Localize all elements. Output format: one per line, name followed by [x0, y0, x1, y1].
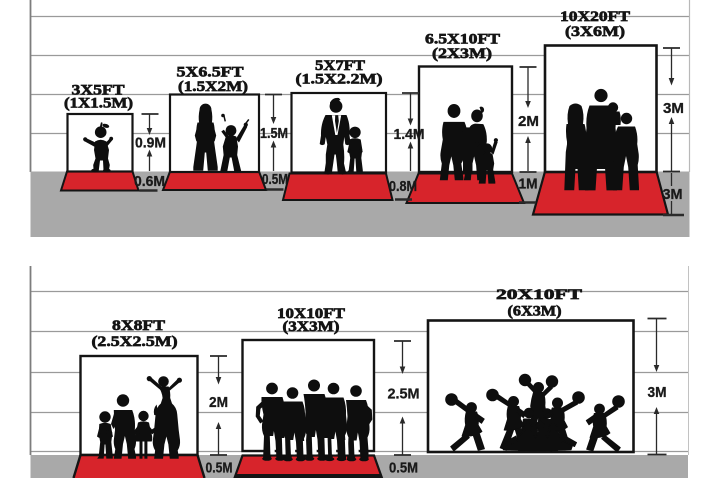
svg-text:2.5M: 2.5M: [388, 386, 420, 403]
svg-text:(1.5X2M): (1.5X2M): [178, 79, 248, 95]
svg-text:0.5M: 0.5M: [206, 460, 233, 477]
svg-text:0.5M: 0.5M: [389, 460, 418, 477]
svg-text:1M: 1M: [519, 176, 538, 193]
svg-text:0.5M: 0.5M: [262, 171, 288, 188]
svg-text:(3X6M): (3X6M): [565, 24, 625, 40]
svg-text:2M: 2M: [518, 113, 539, 130]
svg-text:(2X3M): (2X3M): [432, 46, 492, 62]
svg-text:0.6M: 0.6M: [134, 173, 165, 190]
svg-text:20X10FT: 20X10FT: [496, 287, 582, 303]
svg-text:3M: 3M: [663, 100, 684, 117]
svg-text:(6X3M): (6X3M): [508, 304, 562, 320]
svg-text:0.8M: 0.8M: [389, 178, 417, 195]
svg-text:(1.5X2.2M): (1.5X2.2M): [296, 72, 383, 88]
svg-text:10X20FT: 10X20FT: [560, 9, 630, 25]
svg-text:2M: 2M: [209, 394, 228, 411]
svg-text:3M: 3M: [663, 186, 683, 203]
svg-text:0.9M: 0.9M: [135, 135, 166, 152]
svg-text:(1X1.5M): (1X1.5M): [64, 96, 133, 112]
svg-text:1.4M: 1.4M: [394, 126, 425, 143]
svg-text:(2.5X2.5M): (2.5X2.5M): [92, 334, 178, 350]
svg-text:(3X3M): (3X3M): [283, 319, 340, 335]
svg-text:8X8FT: 8X8FT: [112, 318, 165, 334]
svg-text:1.5M: 1.5M: [260, 125, 288, 142]
svg-text:3M: 3M: [648, 384, 667, 401]
